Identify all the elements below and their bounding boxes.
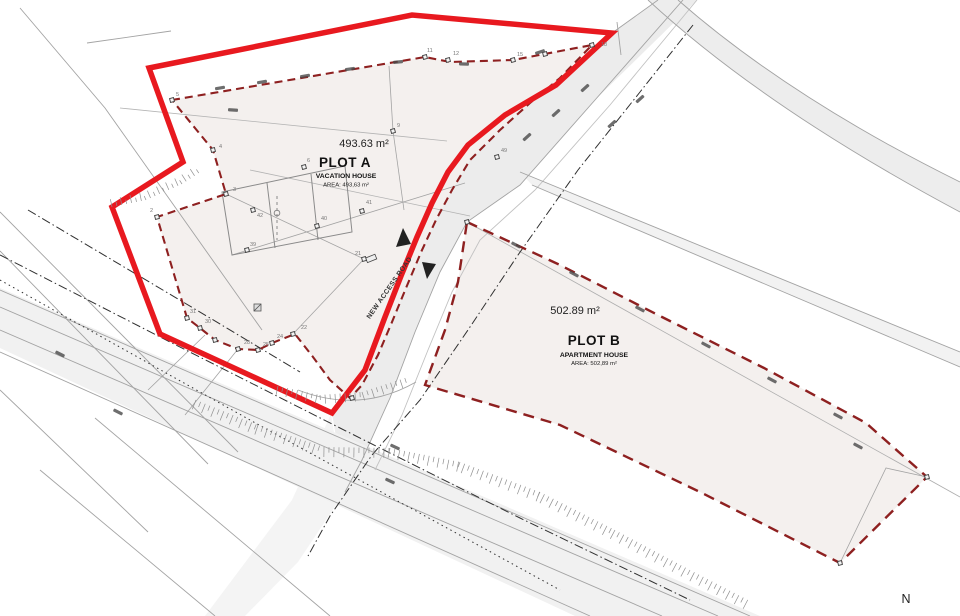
hatch-tick (408, 452, 410, 462)
hatch-tick (188, 175, 190, 179)
hatch-tick (716, 586, 721, 595)
survey-marker (315, 224, 320, 229)
vertex-label: 24 (277, 334, 283, 340)
survey-marker (170, 98, 175, 103)
vertex-label: 12 (453, 51, 459, 57)
hatch-tick (558, 503, 563, 512)
hatch-tick (413, 453, 414, 458)
vertex-label: 25 (263, 342, 269, 348)
plot-b-area-value: 502.89 m² (550, 305, 600, 317)
vertex-label: 9 (397, 123, 400, 129)
hatch-tick (496, 476, 498, 481)
hatch-tick (508, 481, 512, 490)
vertex-label: 18 (601, 42, 607, 48)
hatch-tick (585, 517, 590, 526)
hatch-tick (637, 544, 642, 553)
hatch-tick (166, 183, 169, 190)
plot-a-building-type: VACATION HOUSE (316, 173, 377, 180)
hatch-tick (679, 565, 682, 570)
hatch-tick (732, 593, 735, 598)
hatch-tick (576, 512, 581, 521)
hatch-tick (400, 380, 403, 389)
hatch-tick (546, 497, 548, 502)
micro-label-blob (215, 86, 225, 91)
hatch-tick (394, 449, 395, 454)
hatch-tick (652, 551, 655, 556)
survey-marker (590, 43, 595, 48)
hatch-tick (301, 391, 302, 396)
survey-marker (185, 316, 190, 321)
plot-a-area-caption: AREA: 493,63 m² (323, 183, 369, 189)
vertex-label: 30 (205, 319, 211, 325)
survey-marker (256, 348, 261, 353)
vertex-label: 3 (233, 187, 236, 193)
hatch-tick (567, 508, 572, 517)
hatch-tick (593, 521, 598, 530)
hatch-tick (182, 175, 186, 182)
hatch-tick (734, 595, 739, 604)
vertex-label: 21 (355, 251, 361, 257)
hatch-tick (619, 535, 624, 544)
hatch-tick (705, 579, 708, 584)
vertex-label: 6 (307, 158, 310, 164)
survey-marker (925, 475, 930, 480)
vertex-label: 4 (219, 144, 222, 150)
hatch-tick (600, 524, 602, 529)
manhole-symbol (254, 304, 261, 311)
hatch-tick (136, 198, 137, 202)
hatch-tick (609, 528, 611, 533)
vertex-label: 49 (501, 148, 507, 154)
hatch-tick (549, 499, 554, 508)
micro-label-blob (607, 119, 617, 128)
hatch-tick (433, 457, 434, 462)
hatch-tick (687, 570, 690, 575)
site-plan-canvas[interactable]: 23456911121518212224252830313940414249 4… (0, 0, 960, 616)
hatch-tick (591, 519, 593, 524)
hatch-tick (505, 480, 507, 485)
hatch-tick (663, 558, 668, 567)
survey-marker (362, 257, 367, 262)
hatch-tick (196, 169, 198, 173)
hatch-tick (311, 393, 312, 398)
survey-marker (224, 192, 229, 197)
plot-a-title: PLOT A (319, 155, 371, 170)
hatch-tick (443, 459, 444, 464)
hatch-tick (335, 394, 336, 403)
vertex-label: 41 (366, 200, 372, 206)
hatch-tick (672, 563, 677, 572)
hatch-tick (461, 464, 465, 473)
hatch-tick (533, 490, 535, 495)
hatch-tick (471, 467, 475, 476)
survey-marker (213, 338, 218, 343)
hatch-tick (527, 488, 531, 497)
hatch-tick (427, 456, 429, 466)
hatch-tick (643, 546, 646, 551)
vertex-label: 15 (517, 52, 523, 58)
hatch-tick (190, 169, 194, 176)
hatch-tick (654, 554, 659, 563)
hatch-tick (437, 458, 439, 468)
hatch-tick (156, 187, 159, 194)
survey-marker (511, 58, 516, 63)
hatch-tick (538, 492, 540, 497)
vertex-label: 39 (250, 242, 256, 248)
survey-marker (291, 332, 296, 337)
vertex-label: 5 (176, 92, 179, 98)
hatch-tick (144, 196, 146, 200)
hatch-tick (489, 474, 493, 483)
hatch-tick (723, 588, 726, 593)
survey-marker (236, 347, 241, 352)
vertex-label: 2 (150, 208, 153, 214)
hatch-tick (670, 561, 673, 566)
vertex-label: 11 (427, 48, 433, 54)
hatch-tick (573, 510, 575, 515)
hatch-tick (681, 568, 686, 577)
hatch-tick (514, 483, 516, 488)
hatch-tick (555, 501, 557, 506)
hatch-tick (634, 542, 637, 547)
micro-label-blob (113, 408, 123, 415)
hatch-tick (708, 581, 713, 590)
hatch-tick (741, 598, 744, 603)
plot-b-area-caption: AREA: 502,89 m² (571, 361, 617, 367)
hatch-tick (617, 532, 620, 537)
survey-marker (838, 561, 843, 566)
hatch-tick (714, 584, 717, 589)
survey-marker (465, 220, 470, 225)
survey-marker (270, 341, 275, 346)
survey-marker (155, 215, 160, 220)
survey-marker (391, 129, 396, 134)
hatch-tick (602, 526, 607, 535)
hatch-tick (661, 556, 664, 561)
vertex-label: 40 (321, 216, 327, 222)
hatch-tick (405, 378, 407, 383)
hatch-tick (175, 178, 178, 185)
hatch-tick (417, 454, 419, 464)
vertex-label: 28 (244, 340, 250, 346)
survey-marker (211, 148, 216, 153)
survey-marker (423, 55, 428, 60)
hatch-tick (180, 180, 182, 184)
survey-marker (245, 248, 250, 253)
survey-marker (302, 165, 307, 170)
survey-marker (198, 326, 203, 331)
survey-marker (495, 155, 500, 160)
survey-marker (446, 58, 451, 63)
hatch-tick (699, 577, 704, 586)
branch-road-surface (648, 0, 960, 212)
hatch-tick (404, 451, 405, 456)
hatch-tick (447, 460, 449, 470)
hatch-tick (743, 600, 748, 609)
hatch-tick (610, 530, 615, 539)
vertex-label: 31 (190, 309, 196, 315)
hatch-tick (480, 471, 484, 480)
hatch-tick (467, 466, 469, 471)
hatch-tick (564, 506, 566, 511)
hatch-tick (628, 539, 633, 548)
survey-marker (350, 396, 355, 401)
hatch-tick (147, 191, 150, 198)
plot-a-area-value: 493.63 m² (339, 138, 389, 150)
hatch-tick (524, 487, 526, 492)
vertex-label: 22 (301, 325, 307, 331)
hatch-tick (499, 478, 503, 487)
hatch-tick (646, 549, 651, 558)
hatch-tick (725, 591, 730, 600)
micro-label-blob (459, 62, 469, 66)
vertex-label: 42 (257, 213, 263, 219)
site-plan-page: 23456911121518212224252830313940414249 4… (0, 0, 960, 616)
survey-marker (251, 208, 256, 213)
hatch-tick (690, 572, 695, 581)
hatch-tick (540, 494, 545, 503)
hatch-tick (626, 537, 629, 542)
hatch-tick (172, 184, 174, 188)
hatch-tick (517, 485, 521, 494)
survey-marker (360, 209, 365, 214)
hatch-tick (423, 455, 424, 460)
hatch-tick (453, 461, 454, 466)
hatch-tick (140, 193, 142, 201)
plot-b-title: PLOT B (568, 333, 621, 348)
hatch-tick (153, 192, 155, 196)
hatch-tick (486, 473, 488, 478)
hatch-tick (477, 469, 479, 474)
north-label: N (901, 592, 910, 606)
hatch-tick (325, 395, 326, 404)
hatch-tick (582, 515, 584, 520)
plot-b-building-type: APARTMENT HOUSE (560, 352, 629, 359)
hatch-tick (696, 575, 699, 580)
